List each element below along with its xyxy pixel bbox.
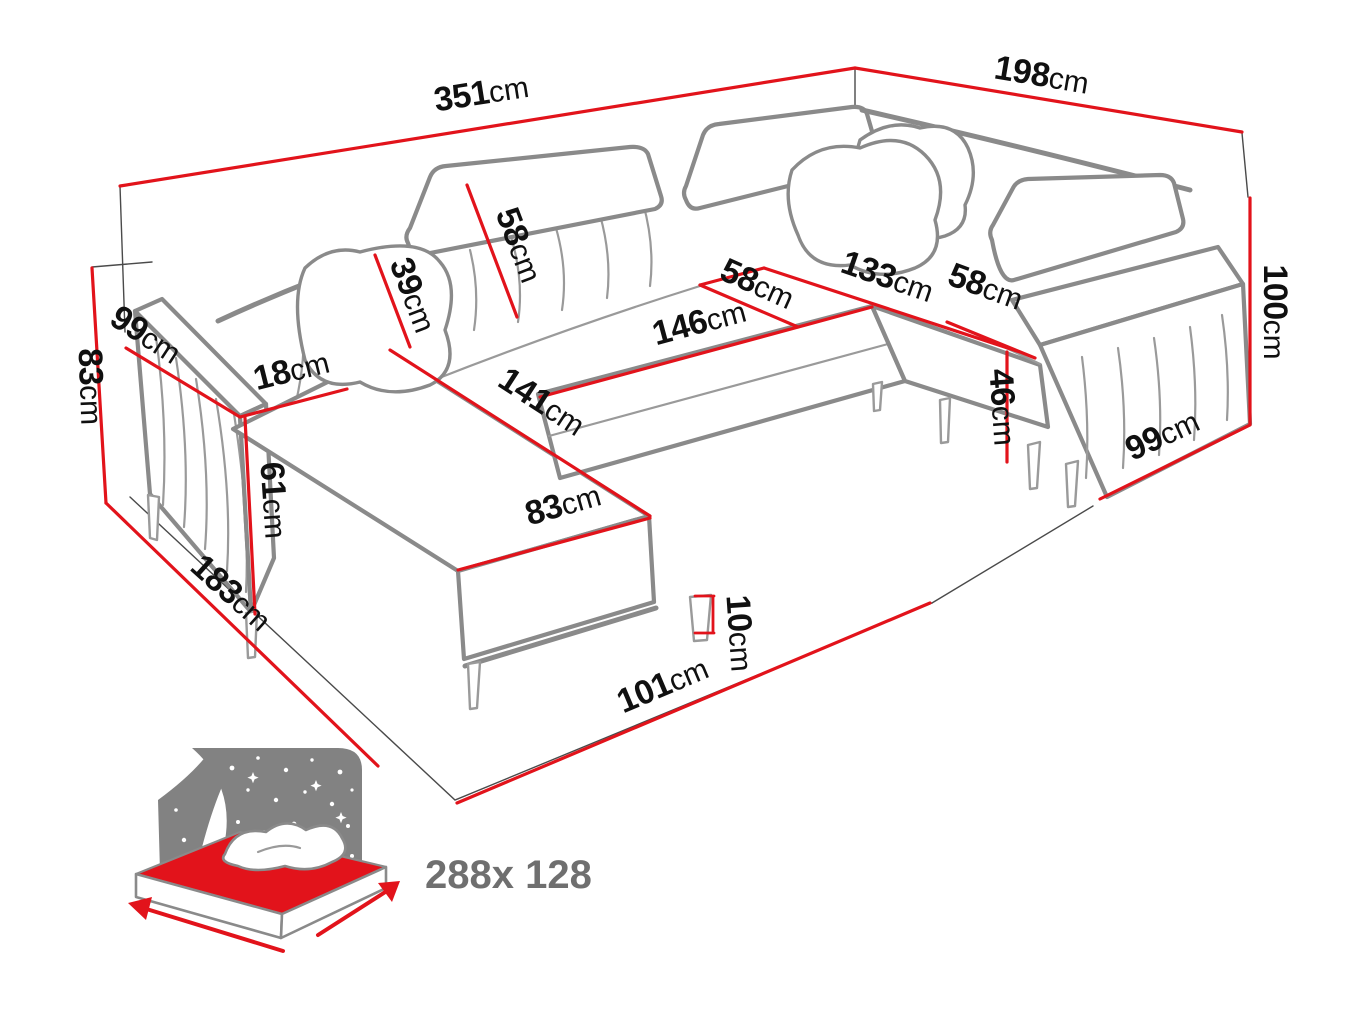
sleeping-function-icon xyxy=(128,748,400,951)
star-dot xyxy=(284,768,288,772)
chaise-front-left-leg xyxy=(468,662,480,709)
star-dot xyxy=(256,756,260,760)
dim-label-back-width: 351cm xyxy=(431,67,531,119)
right-armrest-front-leg xyxy=(1066,461,1078,507)
tuft-line xyxy=(600,215,608,298)
star-dot xyxy=(303,790,306,793)
dim-label-front-clearance: 101cm xyxy=(611,649,714,721)
corner-left-leg xyxy=(873,382,882,411)
sofa-drawing xyxy=(135,107,1250,709)
sleeping-area-size: 288x 128 xyxy=(425,853,592,897)
dim-label-leg-height: 10cm xyxy=(718,594,761,673)
dim-label-arm-height: 61cm xyxy=(252,461,295,540)
corner-seat-front-face xyxy=(872,306,1048,427)
tuft-line xyxy=(643,203,651,286)
tuft-line xyxy=(470,250,476,330)
star-dot xyxy=(338,770,343,775)
floor-right-guide xyxy=(932,506,1093,603)
headrest-panel-left xyxy=(406,147,661,255)
bed-width-arrowhead xyxy=(128,897,152,920)
star-dot xyxy=(230,766,235,771)
right-armrest-left-leg xyxy=(1028,442,1040,489)
dim-label-seat-height: 46cm xyxy=(981,368,1024,447)
corner-front-leg xyxy=(940,398,950,443)
sofa-dimension-drawing: 351cm 198cm 100cm 83cm 99cm 18cm 61cm 18… xyxy=(0,0,1352,1014)
star-dot xyxy=(310,758,313,761)
star-dot xyxy=(330,802,334,806)
wall-edge-right-guide xyxy=(1242,133,1248,197)
star-dot xyxy=(274,798,278,802)
dim-label-body-height: 83cm xyxy=(71,348,112,426)
star-dot xyxy=(174,808,178,812)
star-dot xyxy=(236,820,240,824)
tuft-line xyxy=(556,228,564,310)
star-dot xyxy=(346,824,350,828)
diagram-stage: 351cm 198cm 100cm 83cm 99cm 18cm 61cm 18… xyxy=(0,0,1352,1014)
dim-label-total-height: 100cm xyxy=(1256,264,1294,359)
star-dot xyxy=(182,838,186,842)
star-dot xyxy=(350,788,353,791)
star-dot xyxy=(246,788,249,791)
left-armrest-back-leg xyxy=(148,495,159,540)
